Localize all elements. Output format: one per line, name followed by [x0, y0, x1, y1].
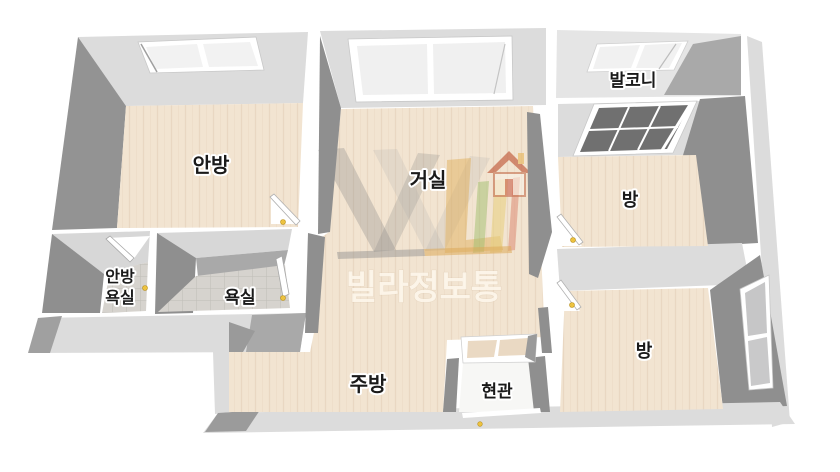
watermark-text: 빌라정보통 — [346, 269, 502, 307]
door-handle — [571, 238, 576, 243]
floor-plan-svg: 빌라정보통 — [0, 0, 840, 472]
window-pane — [357, 44, 428, 95]
label-living-room: 거실 — [410, 169, 447, 192]
master-bedroom-window — [138, 37, 264, 73]
house-chimney — [518, 153, 524, 164]
house-door — [505, 179, 513, 196]
kitchen-right-wall-face — [538, 307, 552, 353]
label-master-bedroom: 안방 — [193, 154, 230, 177]
label-master-bath-line2: 욕실 — [105, 289, 134, 307]
label-room-bottom-right: 방 — [636, 341, 653, 361]
label-entrance: 현관 — [481, 382, 513, 401]
floor-plan-page: 빌라정보통 — [0, 0, 840, 472]
bathroom-bottom-wall-right-face — [246, 313, 306, 352]
label-bathroom: 욕실 — [224, 288, 255, 307]
label-balcony: 발코니 — [610, 71, 657, 90]
window-pane — [433, 42, 506, 94]
window-pane — [748, 337, 770, 386]
label-room-top-right: 방 — [622, 190, 639, 210]
door-handle — [570, 303, 575, 308]
window-pane — [203, 42, 258, 67]
bathroom-door-handle — [281, 296, 286, 301]
label-kitchen: 주방 — [350, 373, 387, 396]
living-room-window — [348, 36, 513, 102]
label-master-bath-line1: 안방 — [105, 268, 135, 286]
kitchen-left-wall — [213, 352, 229, 414]
living-room-right-wall-face — [527, 112, 552, 278]
window-pane — [146, 44, 203, 69]
shoe-cabinet-pane-1 — [467, 340, 497, 358]
balcony-window — [587, 41, 688, 72]
door-handle — [281, 220, 286, 225]
master-bath-door-handle — [143, 286, 148, 291]
shoe-cabinet-pane-2 — [498, 338, 528, 356]
entrance-door-handle — [478, 422, 483, 427]
